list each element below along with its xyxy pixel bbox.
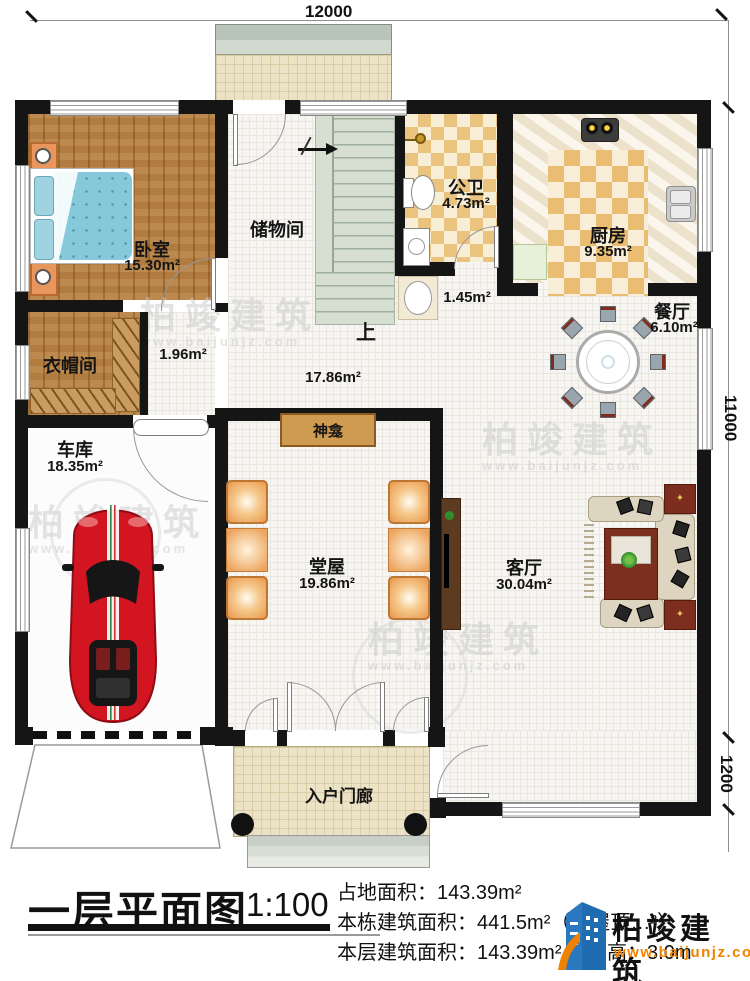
sink-bowl (670, 190, 691, 204)
sofa-fringe-mat (584, 524, 594, 600)
dining-chair (650, 354, 666, 370)
wall (15, 727, 33, 745)
brand-url: www.baijunjz.com (614, 944, 750, 961)
washing-machine-drum (408, 238, 425, 255)
wall (28, 300, 123, 312)
plant (445, 511, 454, 520)
area-washnook: 1.45m² (443, 289, 491, 306)
dining-chair (550, 354, 566, 370)
floor-nook (148, 312, 215, 415)
fridge (513, 244, 547, 280)
hall-chair (388, 480, 430, 524)
sofa-chaise (600, 598, 664, 628)
brand-logo: 柏竣建筑 www.baijunjz.com (556, 898, 746, 976)
room-area-living: 30.04m² (496, 576, 552, 593)
wall (648, 283, 697, 296)
dim-label-top: 12000 (305, 2, 352, 22)
wall (215, 100, 228, 258)
wall (200, 727, 233, 745)
sofa-side-table: ✦ (664, 484, 696, 514)
wall (140, 312, 148, 415)
window (15, 165, 30, 292)
wall (445, 802, 502, 816)
scale-label: 1:100 (246, 886, 329, 924)
room-area-hall: 19.86m² (299, 575, 355, 592)
brand-logo-icon (556, 900, 608, 972)
shrine-label: 神龛 (313, 420, 343, 441)
rug-plant (621, 552, 637, 568)
wall (430, 798, 446, 818)
wall (215, 303, 228, 312)
floor-plan: 12000 11000 1200 柏竣建筑 www.baijunjz.com 柏… (0, 0, 750, 981)
wash-basin (404, 281, 432, 315)
hall-side-table (388, 528, 430, 572)
porch-column (404, 813, 427, 836)
wall (277, 730, 287, 746)
burner (586, 122, 598, 134)
lamp (35, 148, 51, 164)
window (502, 802, 640, 818)
pillow (34, 219, 54, 260)
room-area-garage: 18.35m² (47, 458, 103, 475)
porch-steps (247, 835, 430, 868)
room-area-bath: 4.73m² (442, 195, 490, 212)
door-opening (233, 100, 285, 114)
stair-divider (332, 114, 334, 272)
wall-pillar (428, 727, 445, 747)
burner (601, 122, 613, 134)
room-area-kitchen: 9.35m² (584, 243, 632, 260)
toilet-bowl (411, 175, 435, 210)
stat-floor-area-text: 本层建筑面积：143.39m² (337, 942, 562, 964)
dim-label-right-lower: 1200 (716, 755, 736, 793)
terrace-roof-band (215, 24, 392, 56)
window (15, 528, 30, 632)
window (15, 345, 30, 400)
title-underline-thick (28, 924, 330, 931)
driveway (8, 740, 226, 852)
stairs-up-label: 上 (356, 316, 376, 345)
lazy-susan (601, 355, 615, 369)
hall-chair (226, 480, 268, 524)
wardrobe (30, 388, 116, 414)
room-label-cloak: 衣帽间 (43, 352, 97, 378)
sink-bowl (670, 205, 691, 219)
room-area-bedroom: 15.30m² (124, 257, 180, 274)
stair-treads-lower (316, 272, 394, 324)
hall-chair (226, 576, 268, 620)
brand-name: 柏竣建筑 (612, 904, 746, 981)
lamp (35, 269, 51, 285)
towel-ring-icon (415, 133, 426, 144)
room-area-dining: 6.10m² (650, 319, 698, 336)
window (300, 100, 407, 116)
room-label-storage: 储物间 (250, 216, 304, 242)
area-cloak: 1.96m² (159, 346, 207, 363)
wall (638, 802, 710, 816)
title-underline-thin (28, 934, 380, 936)
window (697, 148, 713, 252)
area-corridor: 17.86m² (305, 369, 361, 386)
window (697, 328, 713, 450)
window (50, 100, 179, 116)
stair-treads-upper (332, 118, 395, 272)
wardrobe (112, 318, 140, 412)
sofa-pillow (637, 499, 654, 516)
dim-line-top (30, 20, 728, 21)
shrine-table: 神龛 (280, 413, 376, 447)
tv (444, 534, 449, 588)
stair-arrow-head (326, 143, 338, 155)
wall (497, 283, 538, 296)
pillow (34, 176, 54, 216)
hall-chair (388, 576, 430, 620)
wall (497, 114, 513, 276)
stat-land-area: 占地面积：143.39m² (337, 876, 522, 905)
car (58, 492, 168, 737)
room-label-porch: 入户门廊 (305, 782, 373, 807)
wall (15, 415, 133, 428)
dim-label-right-upper: 11000 (720, 395, 740, 441)
hall-side-table (226, 528, 268, 572)
sofa-side-table: ✦ (664, 600, 696, 630)
dining-chair (600, 402, 616, 418)
dim-tick (715, 8, 728, 21)
wall (383, 730, 395, 746)
dining-chair (600, 306, 616, 322)
porch-column (231, 813, 254, 836)
terrace-tile (215, 54, 392, 102)
